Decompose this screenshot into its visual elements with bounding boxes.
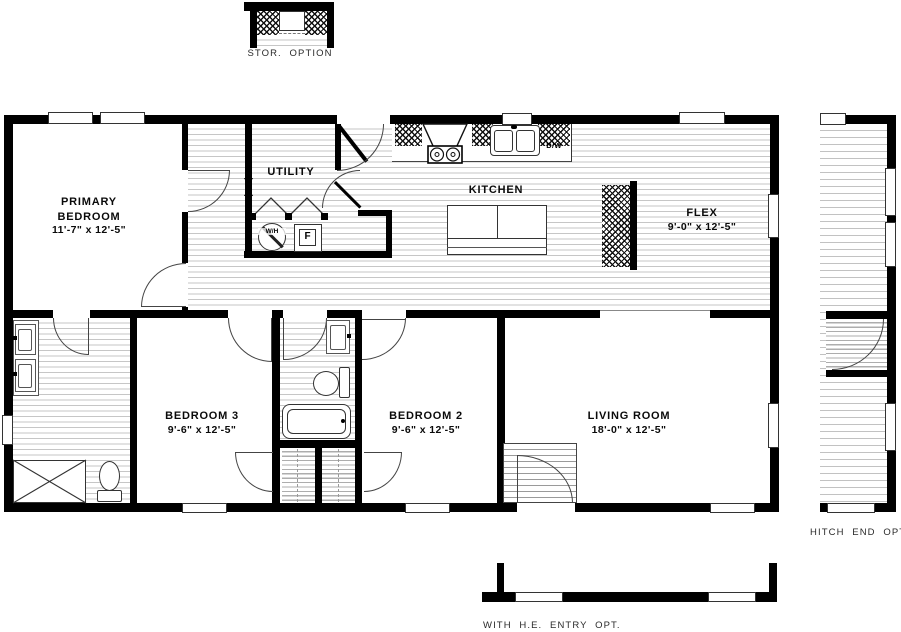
flex-cabinet-hatch (602, 185, 630, 267)
wall (406, 310, 600, 318)
storage-floor (257, 35, 327, 48)
faucet-icon (347, 334, 351, 338)
window (710, 503, 755, 513)
room-dims: 11'-7" x 12'-5" (29, 224, 149, 238)
window (405, 503, 450, 513)
window (820, 113, 846, 125)
room-name: BEDROOM 3 (152, 409, 252, 424)
wall (130, 318, 137, 503)
wall (386, 216, 392, 258)
bedroom2-door-arc (362, 318, 406, 360)
sink-basin (330, 325, 346, 350)
entry-option-wall (769, 563, 777, 594)
wall (358, 210, 392, 216)
bedroom2-label: BEDROOM 2 9'-6" x 12'-5" (376, 409, 476, 437)
wall (272, 318, 280, 503)
wall (710, 310, 770, 318)
hitch-closet-wall (826, 311, 890, 319)
wall (244, 251, 392, 258)
window (679, 112, 725, 124)
window (885, 403, 896, 451)
storage-option-wall (250, 11, 257, 48)
storage-option-wall (244, 2, 334, 11)
sink-basin (18, 364, 32, 388)
flex-cabinet-wall (630, 181, 637, 270)
hitch-end-label: HITCH END OPT. (810, 527, 901, 538)
window (885, 222, 896, 267)
window (502, 113, 532, 125)
room-name: LIVING ROOM (579, 409, 679, 424)
room-name: UTILITY (241, 165, 341, 180)
island-divider (447, 247, 547, 248)
door-leaf (88, 318, 89, 355)
primary-bedroom-label: PRIMARY BEDROOM 11'-7" x 12'-5" (29, 195, 149, 238)
window (768, 403, 779, 448)
window (827, 503, 875, 513)
storage-option-wall (327, 11, 334, 48)
range (418, 120, 472, 166)
window (100, 112, 145, 124)
kitchen-label: KITCHEN (446, 183, 546, 198)
wall (182, 212, 188, 263)
primary-bedroom-door-arc (141, 263, 186, 307)
front-door-opening (337, 115, 390, 124)
room-name: BEDROOM 2 (376, 409, 476, 424)
closet2-door-arc (364, 452, 402, 492)
room-dims: 9'-6" x 12'-5" (376, 424, 476, 438)
wall (355, 318, 362, 503)
window (515, 592, 563, 602)
room-name: FLEX (652, 206, 752, 221)
wall (327, 310, 362, 318)
closet-floor (282, 448, 315, 503)
toilet (313, 371, 339, 396)
room-dims: 18'-0" x 12'-5" (579, 424, 679, 438)
toilet (99, 461, 120, 491)
storage-shelf-hatch (257, 11, 279, 35)
storage-option-label: STOR. OPTION (244, 48, 336, 59)
wall (272, 440, 362, 448)
sink-basin (18, 329, 32, 351)
closet-rod-line (338, 449, 339, 502)
room-name: PRIMARY BEDROOM (29, 195, 149, 224)
closet-rod-line (297, 449, 298, 502)
water-heater-label: W/H (258, 228, 286, 235)
faucet-icon (511, 125, 517, 129)
faucet-icon (13, 336, 17, 340)
wall (272, 310, 283, 318)
room-name: KITCHEN (446, 183, 546, 198)
furnace-label: F (299, 231, 316, 242)
toilet-tank (339, 367, 350, 398)
island-divider (497, 205, 498, 238)
window (48, 112, 93, 124)
window (885, 168, 896, 216)
bathtub-inner (287, 409, 346, 434)
living-room-label: LIVING ROOM 18'-0" x 12'-5" (579, 409, 679, 437)
bedroom3-door-arc (228, 318, 272, 362)
exterior-wall-bottom (4, 503, 779, 512)
entry-option-label: WITH H.E. ENTRY OPT. (483, 620, 621, 631)
wall-marker (242, 177, 255, 197)
floor-edge-line (600, 310, 710, 311)
faucet-icon (13, 372, 17, 376)
toilet-tank (97, 490, 122, 502)
dishwasher-label: D/W (538, 141, 570, 150)
sink-basin (516, 130, 535, 152)
flex-label: FLEX 9'-0" x 12'-5" (652, 206, 752, 234)
room-dims: 9'-0" x 12'-5" (652, 221, 752, 235)
shower-x (13, 460, 86, 503)
island-divider (447, 238, 547, 239)
wall (182, 124, 188, 170)
storage-dashed-line (279, 33, 305, 34)
room-dims: 9'-6" x 12'-5" (152, 424, 252, 438)
exterior-wall-right (770, 115, 779, 512)
window (708, 592, 756, 602)
storage-shelf-hatch (305, 11, 327, 35)
window (768, 194, 779, 238)
wall (90, 310, 228, 318)
closet3-door-arc (235, 452, 273, 492)
window (182, 503, 227, 513)
floor-plan: STOR. OPTION (0, 0, 901, 632)
hitch-closet-wall (826, 370, 890, 377)
bedroom3-label: BEDROOM 3 9'-6" x 12'-5" (152, 409, 252, 437)
sink-basin (494, 130, 513, 152)
window (2, 415, 13, 445)
bifold-doors (248, 194, 328, 220)
entry-option-wall (497, 563, 504, 594)
exterior-wall-left (4, 115, 13, 512)
wall (315, 448, 322, 503)
utility-label: UTILITY (241, 165, 341, 180)
entry-door-opening (517, 503, 575, 512)
faucet-icon (341, 419, 345, 423)
storage-door (279, 11, 305, 31)
